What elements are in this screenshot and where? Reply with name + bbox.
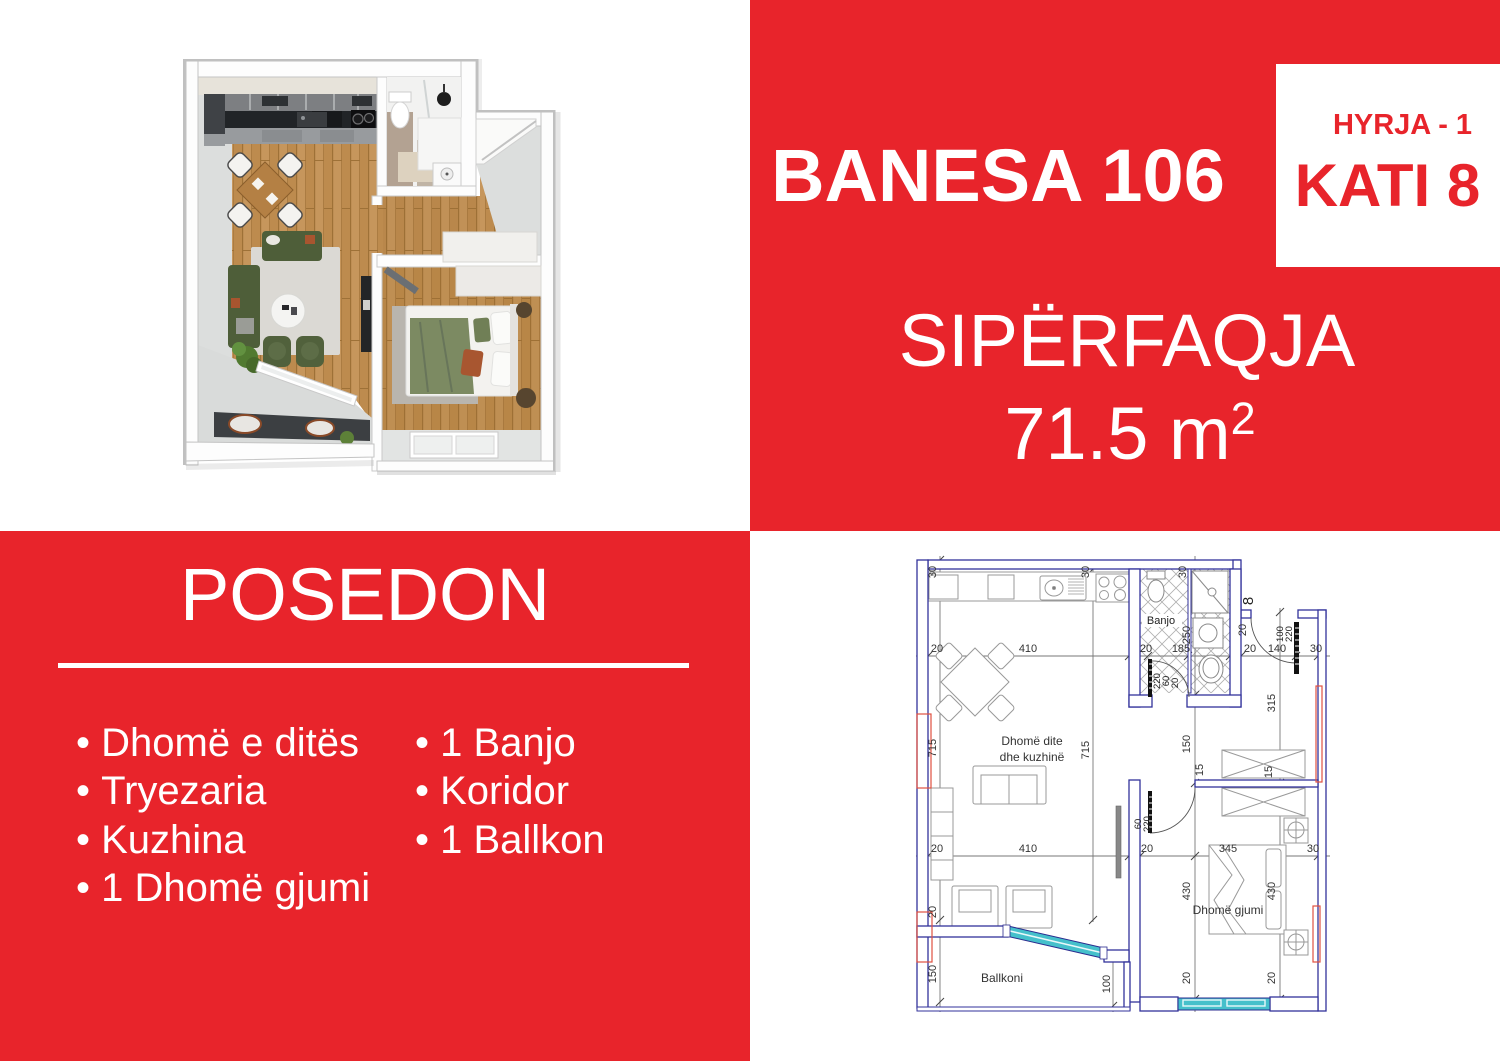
svg-text:100: 100 <box>1101 975 1113 993</box>
svg-text:20: 20 <box>927 906 939 918</box>
svg-text:20: 20 <box>1140 643 1152 655</box>
svg-text:30: 30 <box>1080 566 1092 578</box>
svg-text:Dhomë dite: Dhomë dite <box>1001 734 1063 748</box>
svg-text:20: 20 <box>1266 972 1278 984</box>
svg-text:20: 20 <box>1181 972 1193 984</box>
svg-text:20: 20 <box>1141 843 1153 855</box>
svg-text:20: 20 <box>931 643 943 655</box>
svg-text:250: 250 <box>1181 626 1193 644</box>
svg-text:715: 715 <box>1080 741 1092 759</box>
svg-text:30: 30 <box>927 566 939 578</box>
svg-text:15: 15 <box>1263 766 1275 778</box>
svg-text:Banjo: Banjo <box>1147 615 1175 627</box>
svg-text:220: 220 <box>1142 816 1153 832</box>
svg-text:8: 8 <box>1240 597 1257 605</box>
svg-text:220: 220 <box>1284 626 1295 642</box>
svg-text:dhe kuzhinë: dhe kuzhinë <box>1000 750 1065 764</box>
svg-text:150: 150 <box>1181 735 1193 753</box>
svg-text:20: 20 <box>1244 643 1256 655</box>
svg-text:715: 715 <box>927 739 939 757</box>
svg-text:20: 20 <box>1237 624 1249 636</box>
svg-text:30: 30 <box>1307 843 1319 855</box>
svg-text:410: 410 <box>1019 643 1037 655</box>
svg-text:140: 140 <box>1268 643 1286 655</box>
svg-text:20: 20 <box>1170 678 1181 689</box>
svg-text:345: 345 <box>1219 843 1237 855</box>
svg-text:15: 15 <box>1194 764 1206 776</box>
svg-text:Dhomë gjumi: Dhomë gjumi <box>1193 903 1264 917</box>
svg-text:30: 30 <box>1310 643 1322 655</box>
svg-text:20: 20 <box>931 843 943 855</box>
svg-text:150: 150 <box>927 965 939 983</box>
svg-text:30: 30 <box>1177 566 1189 578</box>
svg-text:315: 315 <box>1266 694 1278 712</box>
svg-text:430: 430 <box>1181 882 1193 900</box>
svg-text:Ballkoni: Ballkoni <box>981 971 1023 985</box>
svg-text:430: 430 <box>1266 882 1278 900</box>
svg-text:410: 410 <box>1019 843 1037 855</box>
